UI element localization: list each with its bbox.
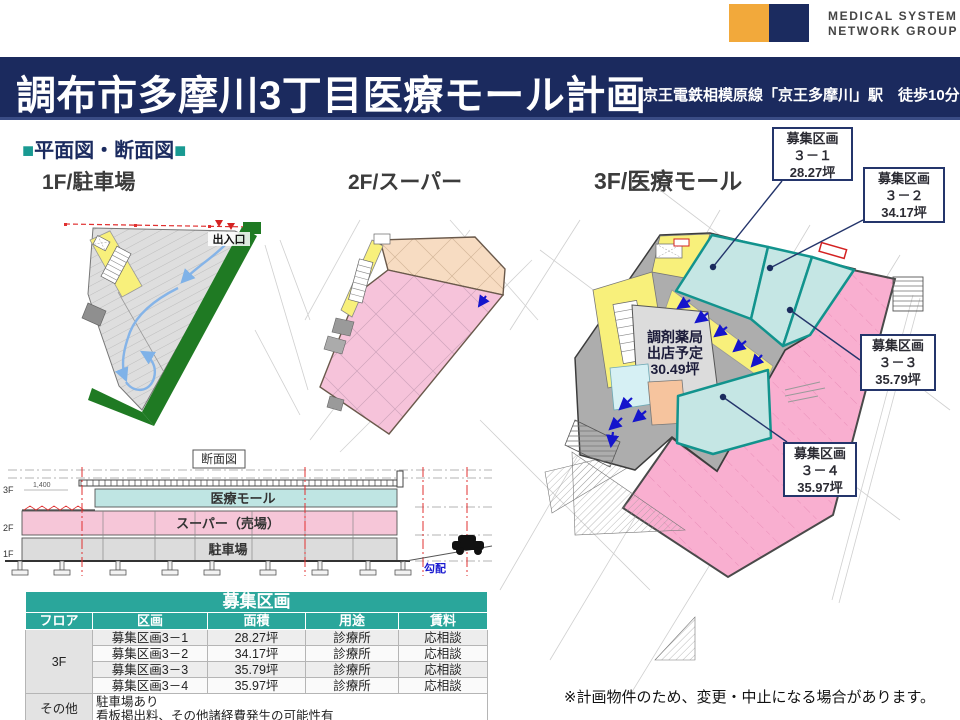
floor-group-cell: 3F	[26, 630, 93, 694]
station-access-subtitle: 京王電鉄相模原線「京王多摩川」駅 徒歩10分	[643, 84, 960, 105]
square-marker-right-icon: ■	[174, 140, 186, 162]
logo-line1: MEDICAL SYSTEM	[828, 9, 958, 24]
footings	[12, 561, 411, 575]
level-marks: 3F 2F 1F	[3, 485, 14, 559]
other-label-cell: その他	[26, 694, 93, 720]
cell-rent: 応相談	[399, 662, 488, 678]
square-marker-left-icon: ■	[22, 140, 34, 162]
callout-area: 35.79坪	[862, 371, 934, 388]
section-heading: ■平面図・断面図■	[22, 134, 186, 163]
cross-section: 勾配 1,400 断面図 医療モール スーパー（売場） 駐車場 3F 2F 1F	[0, 443, 500, 598]
cell-area: 34.17坪	[208, 646, 306, 662]
pharmacy-line1: 調剤薬局	[647, 329, 703, 345]
title-banner: 調布市多摩川3丁目医療モール計画 京王電鉄相模原線「京王多摩川」駅 徒歩10分	[0, 57, 960, 120]
cell-unit: 募集区画3－3	[93, 662, 208, 678]
cell-unit: 募集区画3－4	[93, 678, 208, 694]
pharmacy-note: 調剤薬局 出店予定 30.49坪	[647, 329, 703, 377]
cell-area: 28.27坪	[208, 630, 306, 646]
cell-use: 診療所	[306, 630, 399, 646]
callout-unit-3-2: 募集区画 ３－２ 34.17坪	[863, 167, 945, 223]
logo-yellow-square	[729, 4, 769, 42]
cell-rent: 応相談	[399, 678, 488, 694]
callout-area: 34.17坪	[865, 204, 943, 221]
cell-rent: 応相談	[399, 646, 488, 662]
level-3f: 3F	[3, 485, 14, 495]
floor-label-1f: 1F/駐車場	[42, 166, 135, 196]
logo-line2: NETWORK GROUP	[828, 24, 958, 39]
band-3f-label: 医療モール	[210, 491, 275, 506]
callout-title: 募集区画	[862, 337, 934, 354]
callout-title: 募集区画	[774, 130, 851, 147]
table-other-row: その他 駐車場あり 看板掲出料、その他諸経費発生の可能性有	[26, 694, 488, 720]
cell-use: 診療所	[306, 662, 399, 678]
callout-unit-3-3: 募集区画 ３－３ 35.79坪	[860, 334, 936, 391]
band-2f-label: スーパー（売場）	[176, 516, 280, 531]
cell-area: 35.79坪	[208, 662, 306, 678]
logo-wordmark: MEDICAL SYSTEM NETWORK GROUP	[828, 9, 958, 39]
pharmacy-line2: 出店予定	[647, 345, 703, 361]
col-header-rent: 賃料	[399, 613, 488, 630]
callout-title: 募集区画	[785, 445, 855, 462]
cell-rent: 応相談	[399, 630, 488, 646]
disclaimer-note: ※計画物件のため、変更・中止になる場合があります。	[560, 686, 935, 707]
service-room-3f	[610, 364, 652, 410]
callout-area: 35.97坪	[785, 479, 855, 496]
cell-use: 診療所	[306, 646, 399, 662]
section-diagram-text: 断面図	[201, 451, 237, 466]
col-header-use: 用途	[306, 613, 399, 630]
red-hatch	[24, 506, 84, 510]
table-header-row: フロア 区画 面積 用途 賃料	[26, 613, 488, 630]
level-2f: 2F	[3, 523, 14, 533]
cell-unit: 募集区画3－2	[93, 646, 208, 662]
entrance-label: 出入口	[213, 232, 246, 246]
col-header-floor: フロア	[26, 613, 93, 630]
table-row: 3F 募集区画3－1 28.27坪 診療所 応相談	[26, 630, 488, 646]
page-title: 調布市多摩川3丁目医療モール計画	[16, 63, 646, 121]
table-title: 募集区画	[26, 592, 488, 613]
recruitment-table: 募集区画 フロア 区画 面積 用途 賃料 3F 募集区画3－1 28.27坪 診…	[25, 591, 488, 720]
cell-area: 35.97坪	[208, 678, 306, 694]
car-icon	[452, 535, 484, 555]
logo-navy-square	[769, 4, 809, 42]
section-heading-label: 平面図・断面図	[34, 140, 174, 162]
slope-label: 勾配	[424, 561, 446, 575]
cell-use: 診療所	[306, 678, 399, 694]
callout-no: ３－４	[785, 462, 855, 479]
other-note-2: 看板掲出料、その他諸経費発生の可能性有	[96, 709, 484, 720]
callout-unit-3-1: 募集区画 ３－１ 28.27坪	[772, 127, 853, 181]
level-1f: 1F	[3, 549, 14, 559]
callout-no: ３－１	[774, 147, 851, 164]
band-1f-label: 駐車場	[208, 542, 247, 557]
table-row: 募集区画3－3 35.79坪 診療所 応相談	[26, 662, 488, 678]
stairs-right-3f	[893, 277, 923, 311]
floor-plan-1f: 出入口	[30, 200, 310, 445]
col-header-area: 面積	[208, 613, 306, 630]
pharmacy-line3: 30.49坪	[650, 361, 699, 377]
table-row: 募集区画3－4 35.97坪 診療所 応相談	[26, 678, 488, 694]
property-line-1f	[64, 223, 252, 228]
other-notes-cell: 駐車場あり 看板掲出料、その他諸経費発生の可能性有	[93, 694, 488, 720]
table-row: 募集区画3－2 34.17坪 診療所 応相談	[26, 646, 488, 662]
dim-label: 1,400	[33, 482, 51, 489]
roof-slab	[79, 480, 400, 486]
callout-unit-3-4: 募集区画 ３－４ 35.97坪	[783, 442, 857, 497]
cell-unit: 募集区画3－1	[93, 630, 208, 646]
other-note-1: 駐車場あり	[96, 695, 484, 709]
parapet	[397, 471, 403, 487]
col-header-unit: 区画	[93, 613, 208, 630]
callout-area: 28.27坪	[774, 164, 851, 181]
slide: MEDICAL SYSTEM NETWORK GROUP 調布市多摩川3丁目医療…	[0, 0, 960, 720]
callout-no: ３－２	[865, 187, 943, 204]
section-diagram-label: 断面図	[193, 450, 245, 468]
floor-label-2f: 2F/スーパー	[348, 166, 462, 196]
callout-title: 募集区画	[865, 170, 943, 187]
callout-no: ３－３	[862, 354, 934, 371]
